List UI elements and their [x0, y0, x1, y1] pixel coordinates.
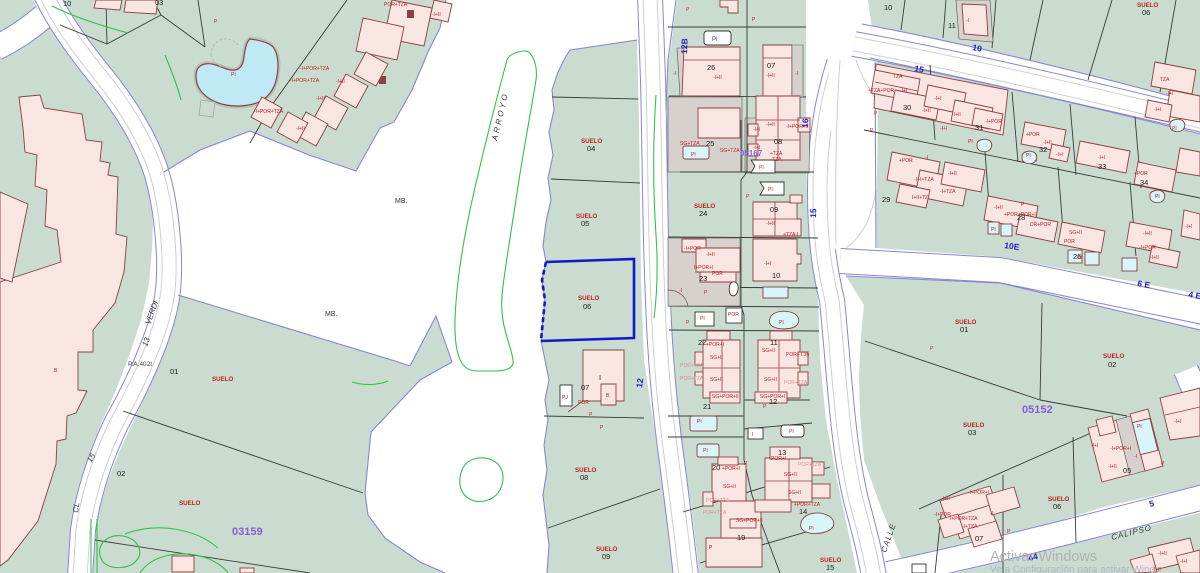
- svg-text:PI: PI: [700, 316, 705, 322]
- svg-text:-I+II: -I+II: [1150, 255, 1159, 261]
- svg-text:30: 30: [903, 103, 911, 112]
- svg-text:-I: -I: [925, 155, 928, 161]
- svg-text:11: 11: [770, 338, 778, 347]
- svg-text:-I+POR+TZA: -I+POR+TZA: [300, 66, 330, 72]
- svg-text:06: 06: [1053, 502, 1061, 511]
- svg-text:-I+II: -I+II: [1158, 551, 1167, 557]
- svg-text:01: 01: [170, 367, 178, 376]
- svg-text:-I+II: -I+II: [941, 496, 950, 502]
- svg-text:DR+POR: DR+POR: [1030, 222, 1051, 228]
- svg-text:10: 10: [63, 0, 71, 8]
- svg-text:02: 02: [117, 469, 125, 478]
- svg-text:POR: POR: [728, 312, 739, 318]
- svg-text:21: 21: [703, 402, 711, 411]
- svg-text:I+POR+I: I+POR+I: [694, 265, 713, 271]
- svg-text:-I: -I: [795, 71, 798, 77]
- svg-text:10E: 10E: [1004, 240, 1021, 252]
- svg-text:+POR+I: +POR+I: [722, 466, 740, 472]
- svg-text:10: 10: [884, 3, 892, 12]
- svg-text:05: 05: [581, 219, 589, 228]
- svg-text:POR+TZA: POR+TZA: [680, 376, 704, 382]
- svg-text:+POR+POR+I: +POR+POR+I: [1004, 212, 1036, 218]
- svg-text:-I+POR: -I+POR: [1139, 245, 1156, 251]
- svg-text:-I+POR: -I+POR: [684, 246, 701, 252]
- svg-text:PI: PI: [1026, 153, 1031, 159]
- svg-text:POR+T.3h: POR+T.3h: [786, 352, 809, 358]
- svg-text:20: 20: [712, 463, 720, 472]
- svg-text:PI: PI: [712, 37, 718, 43]
- svg-text:-I+I: -I+I: [1185, 224, 1192, 230]
- svg-text:TZA: TZA: [893, 74, 903, 80]
- svg-text:-I+I: -I+I: [1091, 443, 1098, 449]
- svg-text:-I+POR+TZA: -I+POR+TZA: [290, 78, 320, 84]
- svg-text:-I+I: -I+I: [1056, 152, 1063, 158]
- svg-text:-I: -I: [1134, 454, 1137, 460]
- svg-text:PI: PI: [1172, 126, 1177, 132]
- svg-text:POR+TZA: POR+TZA: [798, 462, 822, 468]
- svg-text:-I+I: -I+I: [900, 88, 907, 94]
- svg-text:33: 33: [1098, 162, 1106, 171]
- svg-text:-I+I: -I+I: [940, 126, 947, 132]
- svg-text:-I: -I: [679, 288, 682, 294]
- svg-text:-I+II: -I+II: [706, 252, 715, 258]
- svg-text:SUELO: SUELO: [212, 376, 234, 383]
- svg-text:SG+II: SG+II: [764, 377, 777, 383]
- svg-text:05152: 05152: [1022, 404, 1053, 416]
- svg-text:25: 25: [706, 139, 714, 148]
- svg-text:23: 23: [699, 274, 707, 283]
- svg-text:SUELO: SUELO: [578, 295, 600, 302]
- svg-text:10: 10: [772, 271, 780, 280]
- svg-text:12B: 12B: [679, 38, 690, 54]
- svg-text:I+II+TZ: I+II+TZ: [912, 195, 928, 201]
- svg-text:-I+II: -I+II: [994, 205, 1003, 211]
- svg-text:-I+I: -I+I: [1098, 155, 1105, 161]
- svg-text:11: 11: [948, 21, 956, 30]
- svg-text:15: 15: [808, 208, 818, 218]
- svg-text:06: 06: [1142, 8, 1150, 17]
- svg-text:29: 29: [882, 195, 890, 204]
- svg-text:-I+II: -I+II: [1152, 567, 1161, 573]
- svg-text:-I+POR+I: -I+POR+I: [1110, 446, 1131, 452]
- svg-text:-I+II: -I+II: [336, 79, 345, 85]
- svg-text:POR+TZA: POR+TZA: [784, 380, 808, 386]
- svg-text:-I+POR: -I+POR: [985, 119, 1002, 125]
- svg-text:-I+II: -I+II: [1043, 140, 1052, 146]
- svg-text:SG+II: SG+II: [762, 348, 775, 354]
- svg-text:01: 01: [960, 325, 968, 334]
- svg-text:PI: PI: [968, 139, 973, 145]
- svg-text:SG+POR+II: SG+POR+II: [712, 394, 739, 400]
- svg-text:-I+TZA: -I+TZA: [940, 189, 956, 195]
- svg-text:07: 07: [581, 383, 589, 392]
- svg-text:MB.: MB.: [325, 311, 338, 318]
- svg-text:-I+I: -I+I: [1180, 559, 1187, 565]
- svg-text:SG+II: SG+II: [788, 490, 801, 496]
- svg-text:-I+I: -I+I: [1174, 419, 1181, 425]
- svg-text:PI: PI: [991, 227, 996, 233]
- svg-text:-I+II: -I+II: [766, 221, 775, 227]
- svg-text:03159: 03159: [232, 526, 263, 538]
- svg-text:34: 34: [1140, 178, 1148, 187]
- svg-text:-I+II: -I+II: [948, 171, 957, 177]
- svg-text:08: 08: [580, 473, 588, 482]
- svg-text:PI: PI: [1155, 194, 1160, 200]
- svg-text:+TZA+POR: +TZA+POR: [868, 88, 895, 94]
- svg-text:TZA: TZA: [1160, 77, 1170, 83]
- svg-text:03: 03: [155, 0, 163, 7]
- svg-text:PI: PI: [691, 152, 696, 158]
- svg-text:-I+II: -I+II: [713, 75, 722, 81]
- svg-text:Ve a Configuración para activa: Ve a Configuración para activar Wind: [990, 565, 1155, 573]
- svg-text:-I+POR+I: -I+POR+I: [786, 124, 807, 130]
- svg-text:SG+TZA: SG+TZA: [720, 148, 740, 154]
- svg-text:SG+TZA: SG+TZA: [680, 141, 700, 147]
- svg-text:-I+II: -I+II: [766, 73, 775, 79]
- svg-text:POR: POR: [578, 400, 589, 406]
- svg-text:SUELO: SUELO: [1103, 353, 1125, 360]
- svg-text:SG+II: SG+II: [723, 484, 736, 490]
- svg-text:-I+POR: -I+POR: [934, 512, 951, 518]
- svg-text:POR+TZA: POR+TZA: [706, 498, 730, 504]
- svg-text:-I: -I: [990, 511, 993, 517]
- svg-text:+POR: +POR: [1026, 132, 1040, 138]
- svg-text:07: 07: [975, 534, 983, 543]
- svg-text:-I+II: -I+II: [922, 108, 931, 114]
- svg-text:POR+TZA: POR+TZA: [384, 2, 408, 8]
- svg-text:PI: PI: [759, 165, 764, 171]
- svg-text:P.A.402t: P.A.402t: [128, 361, 152, 368]
- svg-text:SG+II: SG+II: [710, 355, 723, 361]
- svg-text:SG+II: SG+II: [1069, 230, 1082, 236]
- svg-text:PI: PI: [1137, 424, 1142, 430]
- svg-text:-I+POR+TZA: -I+POR+TZA: [254, 109, 284, 115]
- svg-text:PI: PI: [703, 448, 708, 454]
- svg-text:PI: PI: [697, 419, 702, 425]
- svg-text:-I+I: -I+I: [1166, 91, 1173, 97]
- svg-text:09: 09: [770, 205, 778, 214]
- svg-text:I: I: [752, 432, 753, 438]
- svg-text:-I+I+TZA: -I+I+TZA: [914, 177, 934, 183]
- svg-text:+POR: +POR: [899, 158, 913, 164]
- svg-text:SG+POR+II: SG+POR+II: [736, 518, 763, 524]
- svg-text:19: 19: [737, 533, 745, 542]
- svg-text:-I+II: -I+II: [1108, 464, 1117, 470]
- svg-text:SUELO: SUELO: [179, 500, 201, 507]
- svg-text:02: 02: [1108, 360, 1116, 369]
- svg-text:PJ: PJ: [562, 395, 568, 401]
- svg-text:Activar Windows: Activar Windows: [990, 549, 1097, 565]
- svg-text:31: 31: [975, 123, 983, 132]
- svg-text:-I+I: -I+I: [934, 96, 941, 102]
- svg-text:PI: PI: [779, 320, 784, 326]
- svg-text:-I+I: -I+I: [753, 145, 760, 151]
- svg-text:05: 05: [1123, 466, 1131, 475]
- svg-text:06: 06: [583, 302, 591, 311]
- svg-text:PI: PI: [789, 429, 794, 435]
- svg-text:POR+I: POR+I: [771, 456, 786, 462]
- svg-text:26: 26: [707, 63, 715, 72]
- svg-text:I: I: [599, 373, 601, 382]
- svg-text:-I+II: -I+II: [316, 96, 325, 102]
- svg-text:SG+II: SG+II: [784, 472, 797, 478]
- svg-text:-I+I: -I+I: [764, 261, 771, 267]
- svg-text:+TZA-I: +TZA-I: [783, 232, 798, 238]
- svg-text:I+POR+TZA: I+POR+TZA: [950, 516, 978, 522]
- svg-text:32: 32: [1039, 145, 1047, 154]
- svg-text:PI: PI: [809, 526, 814, 532]
- svg-text:04: 04: [587, 144, 595, 153]
- svg-text:POR+TZA: POR+TZA: [680, 363, 704, 369]
- svg-text:MB.: MB.: [395, 198, 408, 205]
- svg-text:07: 07: [767, 61, 775, 70]
- svg-text:12: 12: [634, 377, 645, 388]
- svg-text:-I: -I: [1034, 158, 1037, 164]
- svg-text:PI: PI: [1077, 255, 1082, 261]
- svg-text:+POR+TZA: +POR+TZA: [794, 502, 821, 508]
- svg-text:TZA: TZA: [772, 157, 782, 163]
- svg-text:PI: PI: [768, 187, 773, 193]
- svg-text:-I+II: -I+II: [1143, 231, 1152, 237]
- svg-text:-I+II: -I+II: [766, 122, 775, 128]
- svg-text:-I+TZA: -I+TZA: [962, 524, 978, 530]
- svg-text:03: 03: [968, 428, 976, 437]
- svg-text:SG+II: SG+II: [710, 377, 723, 383]
- svg-text:-I+I: -I+I: [753, 127, 760, 133]
- svg-text:POR: POR: [712, 271, 723, 277]
- svg-text:08: 08: [774, 137, 782, 146]
- svg-text:14: 14: [799, 507, 807, 516]
- svg-text:POR: POR: [1064, 239, 1075, 245]
- svg-text:-I: -I: [673, 71, 676, 77]
- svg-text:09: 09: [602, 552, 610, 561]
- svg-text:-I: -I: [966, 18, 969, 24]
- svg-text:-I+II: -I+II: [432, 12, 441, 18]
- svg-text:-I+II: -I+II: [296, 126, 305, 132]
- svg-text:+POR+I: +POR+I: [706, 342, 724, 348]
- svg-text:24: 24: [699, 209, 707, 218]
- svg-text:-I+I: -I+I: [1154, 107, 1161, 113]
- svg-text:+POR: +POR: [1134, 171, 1148, 177]
- svg-text:PI: PI: [231, 72, 236, 78]
- svg-text:SG+POR+I: SG+POR+I: [760, 394, 785, 400]
- svg-text:15: 15: [826, 563, 834, 572]
- svg-text:POR+TZA: POR+TZA: [703, 510, 727, 516]
- svg-text:-I+II: -I+II: [952, 112, 961, 118]
- svg-text:-I+POR+I: -I+POR+I: [968, 490, 989, 496]
- svg-text:CL: CL: [71, 502, 81, 513]
